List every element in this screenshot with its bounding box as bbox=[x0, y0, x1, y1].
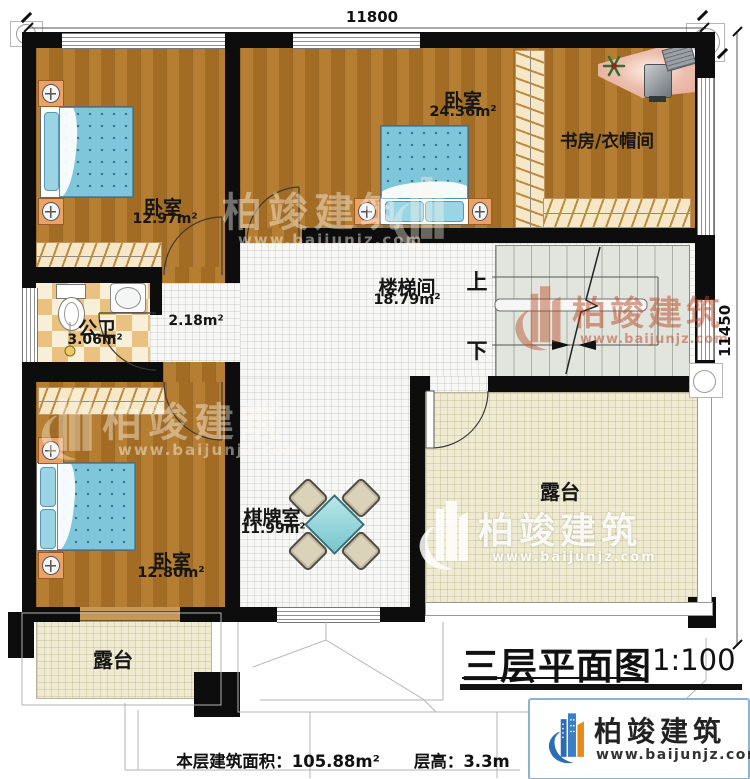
floor-plan-canvas: 柏竣建筑 www.baijunjz.com 柏竣建筑 www.baijunjz.… bbox=[0, 0, 750, 779]
room-area: 18.79m² bbox=[373, 292, 440, 308]
area-label: 本层建筑面积： bbox=[176, 752, 292, 771]
room-label: 书房/衣帽间 bbox=[560, 128, 654, 153]
cloakroom-closet bbox=[515, 50, 545, 228]
wall bbox=[150, 283, 162, 315]
axis-marker bbox=[689, 363, 723, 398]
wall-pier bbox=[194, 672, 240, 717]
window bbox=[62, 33, 225, 49]
knob-icon bbox=[42, 84, 60, 103]
room-area: 12.97m² bbox=[132, 211, 197, 227]
wardrobe bbox=[36, 242, 162, 270]
company-logo-box: 柏竣建筑 www.baijunjz.com bbox=[528, 698, 750, 779]
wall bbox=[180, 607, 277, 622]
pillow bbox=[44, 112, 59, 191]
pillow bbox=[40, 467, 56, 507]
room-area: 2.18m² bbox=[168, 313, 223, 329]
room-label: 露台 bbox=[540, 476, 580, 505]
watermark-url: www.baijunjz.com bbox=[580, 332, 729, 347]
title-underline-thin bbox=[462, 677, 642, 679]
pillow bbox=[40, 509, 56, 549]
knob-icon bbox=[42, 556, 60, 575]
room-area: 24.36m² bbox=[429, 104, 496, 120]
monitor-stand bbox=[649, 96, 666, 102]
stairs-down-label: 下 bbox=[467, 335, 488, 365]
watermark-text: 柏竣建筑 bbox=[478, 502, 642, 554]
mattress bbox=[57, 463, 135, 550]
nightstand bbox=[38, 552, 64, 579]
stairs-up-label: 上 bbox=[467, 266, 488, 296]
height-value: 3.3m bbox=[463, 752, 509, 771]
wall-pier bbox=[8, 612, 34, 658]
watermark-logo-icon bbox=[416, 494, 476, 576]
area-value: 105.88m² bbox=[292, 752, 380, 771]
terrace-door-threshold bbox=[430, 376, 488, 392]
watermark-text: 柏竣建筑 bbox=[222, 180, 406, 238]
wall bbox=[22, 362, 163, 382]
watermark-logo-icon bbox=[38, 382, 100, 466]
company-logo-icon bbox=[546, 709, 590, 767]
room-area: 12.80m² bbox=[137, 565, 204, 581]
plan-scale: 1:100 bbox=[652, 643, 736, 677]
dimension-tick bbox=[697, 10, 708, 21]
bedroom1-door-threshold bbox=[162, 267, 225, 283]
height-label: 层高： bbox=[414, 752, 464, 771]
room-area: 11.99m² bbox=[240, 521, 305, 537]
nightstand bbox=[38, 198, 64, 225]
dimension-top: 11800 bbox=[332, 8, 412, 26]
terrace-railing bbox=[425, 602, 713, 616]
plan-title: 三层平面图 bbox=[462, 636, 652, 690]
title-underline-thick bbox=[460, 684, 742, 690]
room-area: 3.06m² bbox=[67, 332, 122, 348]
floor-info: 本层建筑面积：105.88m²层高：3.3m bbox=[176, 748, 510, 772]
cloakroom-closet bbox=[543, 198, 691, 228]
knob-icon bbox=[42, 202, 60, 221]
knob-icon bbox=[472, 202, 488, 221]
watermark-text: 柏竣建筑 bbox=[572, 286, 724, 335]
bedroom3-terrace-opening bbox=[80, 607, 180, 622]
watermark-text: 柏竣建筑 bbox=[102, 390, 286, 448]
terrace-railing bbox=[697, 392, 712, 604]
watermark-url: www.baijunjz.com bbox=[238, 231, 423, 249]
nightstand bbox=[38, 80, 64, 107]
nightstand bbox=[468, 198, 492, 225]
company-website: www.baijunjz.com bbox=[596, 747, 750, 763]
dimension-right: 11450 bbox=[716, 309, 732, 357]
mattress bbox=[59, 107, 133, 197]
window bbox=[293, 33, 420, 49]
window bbox=[22, 288, 38, 362]
watermark-url: www.baijunjz.com bbox=[492, 550, 657, 565]
wall bbox=[22, 267, 162, 283]
window bbox=[277, 607, 380, 623]
watermark-url: www.baijunjz.com bbox=[118, 441, 303, 459]
watermark-logo-icon bbox=[512, 280, 568, 356]
wall bbox=[380, 607, 425, 622]
room-label: 露台 bbox=[93, 644, 133, 673]
window bbox=[697, 78, 715, 235]
wall bbox=[488, 376, 715, 392]
bedroom3-door-threshold bbox=[163, 362, 225, 382]
sink bbox=[110, 283, 146, 313]
company-name: 柏竣建筑 bbox=[594, 710, 726, 750]
